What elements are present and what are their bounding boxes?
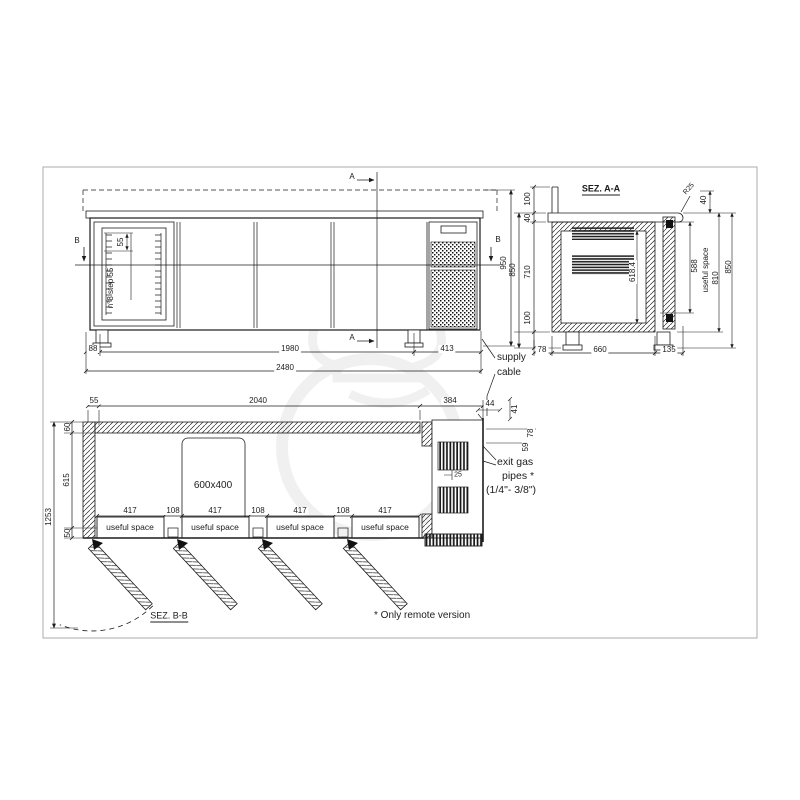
supply-cable-line1: supply: [497, 353, 526, 363]
cut-b-label-right: B: [495, 236, 500, 244]
aa-dim-mid: 660: [591, 346, 608, 354]
useful-space-label: useful space: [106, 523, 154, 532]
plan-dim-overall: 1253: [45, 508, 53, 526]
aa-dim-overall-left: 850: [509, 263, 517, 276]
aa-dim-door: 810: [712, 271, 720, 284]
supply-cable-line2: cable: [497, 368, 521, 378]
gap-width-dim: 108: [334, 507, 351, 515]
plan-dim-left-edge: 55: [88, 397, 101, 405]
aa-dim-front: 135: [660, 346, 677, 354]
aa-useful-label: useful space: [702, 248, 710, 293]
exit-gas-line2: pipes *: [502, 471, 534, 482]
drawing-linework: [0, 0, 800, 800]
cut-a-label-top: A: [349, 173, 354, 181]
useful-space-label: useful space: [361, 523, 409, 532]
plan-dim-body: 2040: [247, 397, 269, 405]
exit-gas-line1: exit gas: [497, 457, 533, 468]
opening-width-dim: 417: [291, 507, 308, 515]
plan-dim-pipe-d: 59: [522, 441, 530, 454]
aa-dim-upstand: 100: [524, 192, 532, 205]
plan-dim-unit: 384: [441, 397, 458, 405]
plan-dim-pipe-c: 78: [527, 427, 535, 440]
useful-space-label: useful space: [276, 523, 324, 532]
aa-dim-body: 710: [524, 265, 532, 278]
aa-dim-overall-right: 850: [725, 260, 733, 273]
section-bb-label: SEZ. B-B: [150, 612, 188, 623]
plan-dim-back: 60: [64, 423, 72, 432]
gap-width-dim: 108: [164, 507, 181, 515]
exit-gas-line3: (1/4"- 3/8"): [486, 485, 536, 496]
aa-dim-worktop: 40: [524, 214, 532, 223]
plan-dim-depth: 615: [63, 473, 71, 486]
front-dim-left: 88: [87, 345, 100, 353]
gap-width-dim: 108: [249, 507, 266, 515]
tray-label: 600x400: [194, 481, 232, 491]
front-dim-unit: 413: [438, 345, 455, 353]
front-view-linework: [75, 172, 515, 416]
front-height-dim: 950: [500, 254, 508, 271]
front-dim-body: 1980: [279, 345, 301, 353]
shelf-note: n°8 step 55: [107, 268, 115, 309]
opening-width-dim: 417: [121, 507, 138, 515]
plan-dim-pipe-v: 41: [511, 405, 519, 414]
aa-dim-legs: 100: [524, 311, 532, 324]
plan-dim-front: 50: [64, 529, 72, 538]
remote-version-footnote: * Only remote version: [374, 611, 470, 621]
aa-dim-top-right: 40: [700, 196, 708, 205]
aa-dim-useful: 588: [691, 259, 699, 272]
aa-dim-interior: 618.4: [629, 260, 637, 284]
front-dim-total: 2480: [274, 364, 296, 372]
plan-dim-vent: 25: [454, 472, 462, 479]
plan-dim-pipe-h: 44: [484, 400, 497, 408]
section-aa-title: SEZ. A-A: [582, 185, 620, 196]
technical-drawing-page: A A B B 950 55 n°8 step 55 88 1980 413 2…: [0, 0, 800, 800]
shelf-pitch-dim: 55: [117, 236, 125, 249]
useful-space-label: useful space: [191, 523, 239, 532]
opening-width-dim: 417: [376, 507, 393, 515]
aa-dim-rear: 78: [536, 346, 549, 354]
opening-width-dim: 417: [206, 507, 223, 515]
cut-a-label-bottom: A: [349, 334, 354, 342]
cut-b-label-left: B: [74, 237, 79, 245]
